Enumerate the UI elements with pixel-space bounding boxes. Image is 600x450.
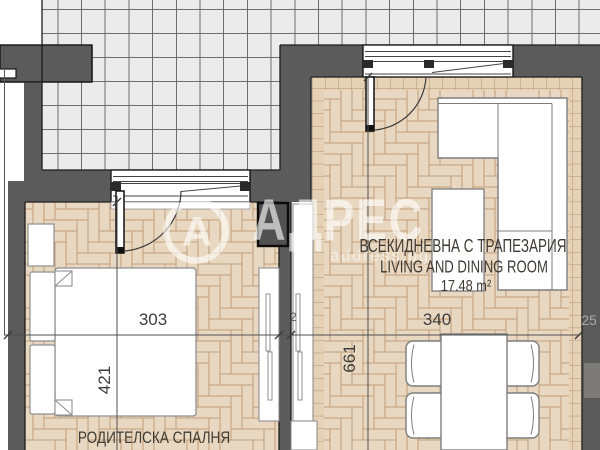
- svg-text:ВСЕКИДНЕВНА С ТРАПЕЗАРИЯ: ВСЕКИДНЕВНА С ТРАПЕЗАРИЯ: [360, 236, 567, 257]
- svg-text:661: 661: [340, 344, 359, 372]
- svg-text:17.48 m²: 17.48 m²: [441, 278, 492, 296]
- svg-text:25: 25: [581, 312, 597, 328]
- svg-text:340: 340: [423, 310, 451, 329]
- svg-text:303: 303: [139, 310, 167, 329]
- svg-text:LIVING AND DINING ROOM: LIVING AND DINING ROOM: [380, 258, 548, 277]
- svg-text:А: А: [182, 208, 212, 255]
- svg-text:РОДИТЕЛСКА СПАЛНЯ: РОДИТЕЛСКА СПАЛНЯ: [78, 429, 230, 448]
- svg-text:421: 421: [95, 366, 114, 394]
- svg-text:12: 12: [283, 310, 297, 324]
